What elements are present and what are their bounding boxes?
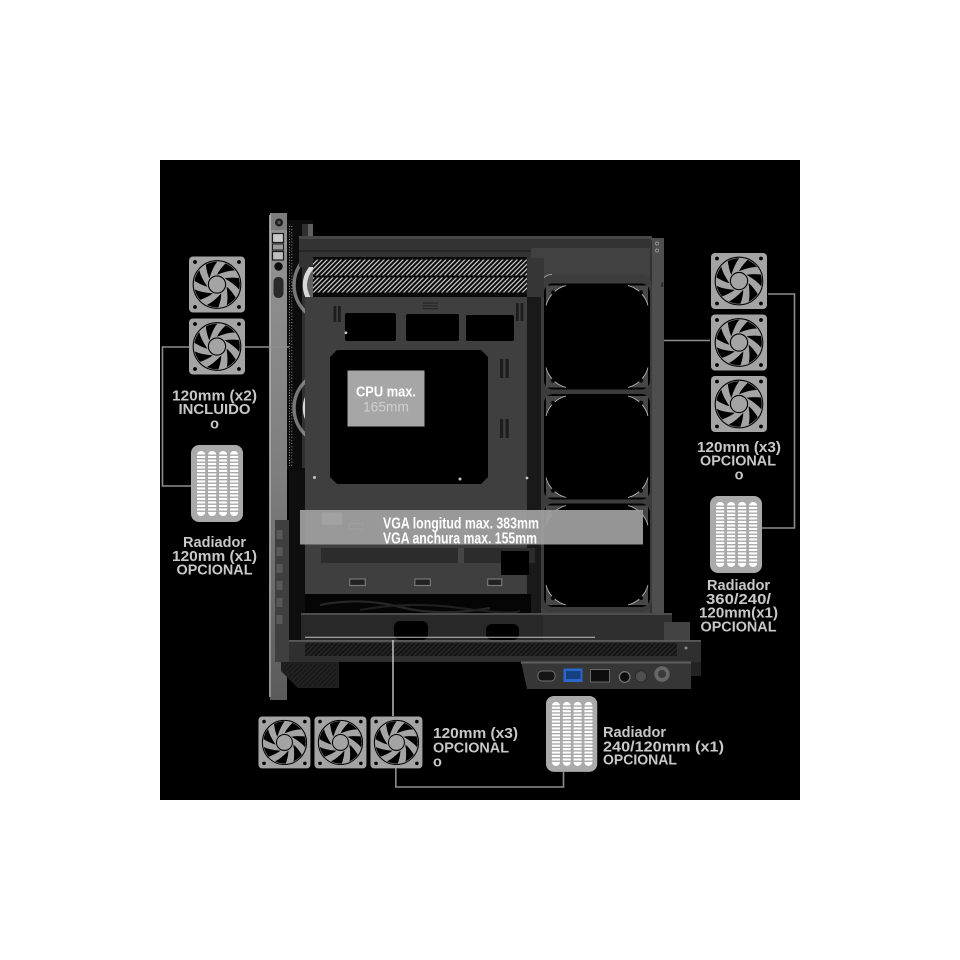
svg-text:OPCIONAL: OPCIONAL bbox=[603, 753, 677, 769]
svg-text:165mm: 165mm bbox=[363, 399, 409, 415]
svg-text:OPCIONAL: OPCIONAL bbox=[177, 563, 253, 579]
svg-text:o: o bbox=[210, 417, 219, 433]
svg-text:o: o bbox=[735, 468, 744, 484]
svg-text:o: o bbox=[433, 755, 442, 771]
svg-text:OPCIONAL: OPCIONAL bbox=[433, 741, 509, 757]
svg-text:VGA anchura max. 155mm: VGA anchura max. 155mm bbox=[383, 531, 537, 548]
svg-text:OPCIONAL: OPCIONAL bbox=[701, 620, 777, 636]
